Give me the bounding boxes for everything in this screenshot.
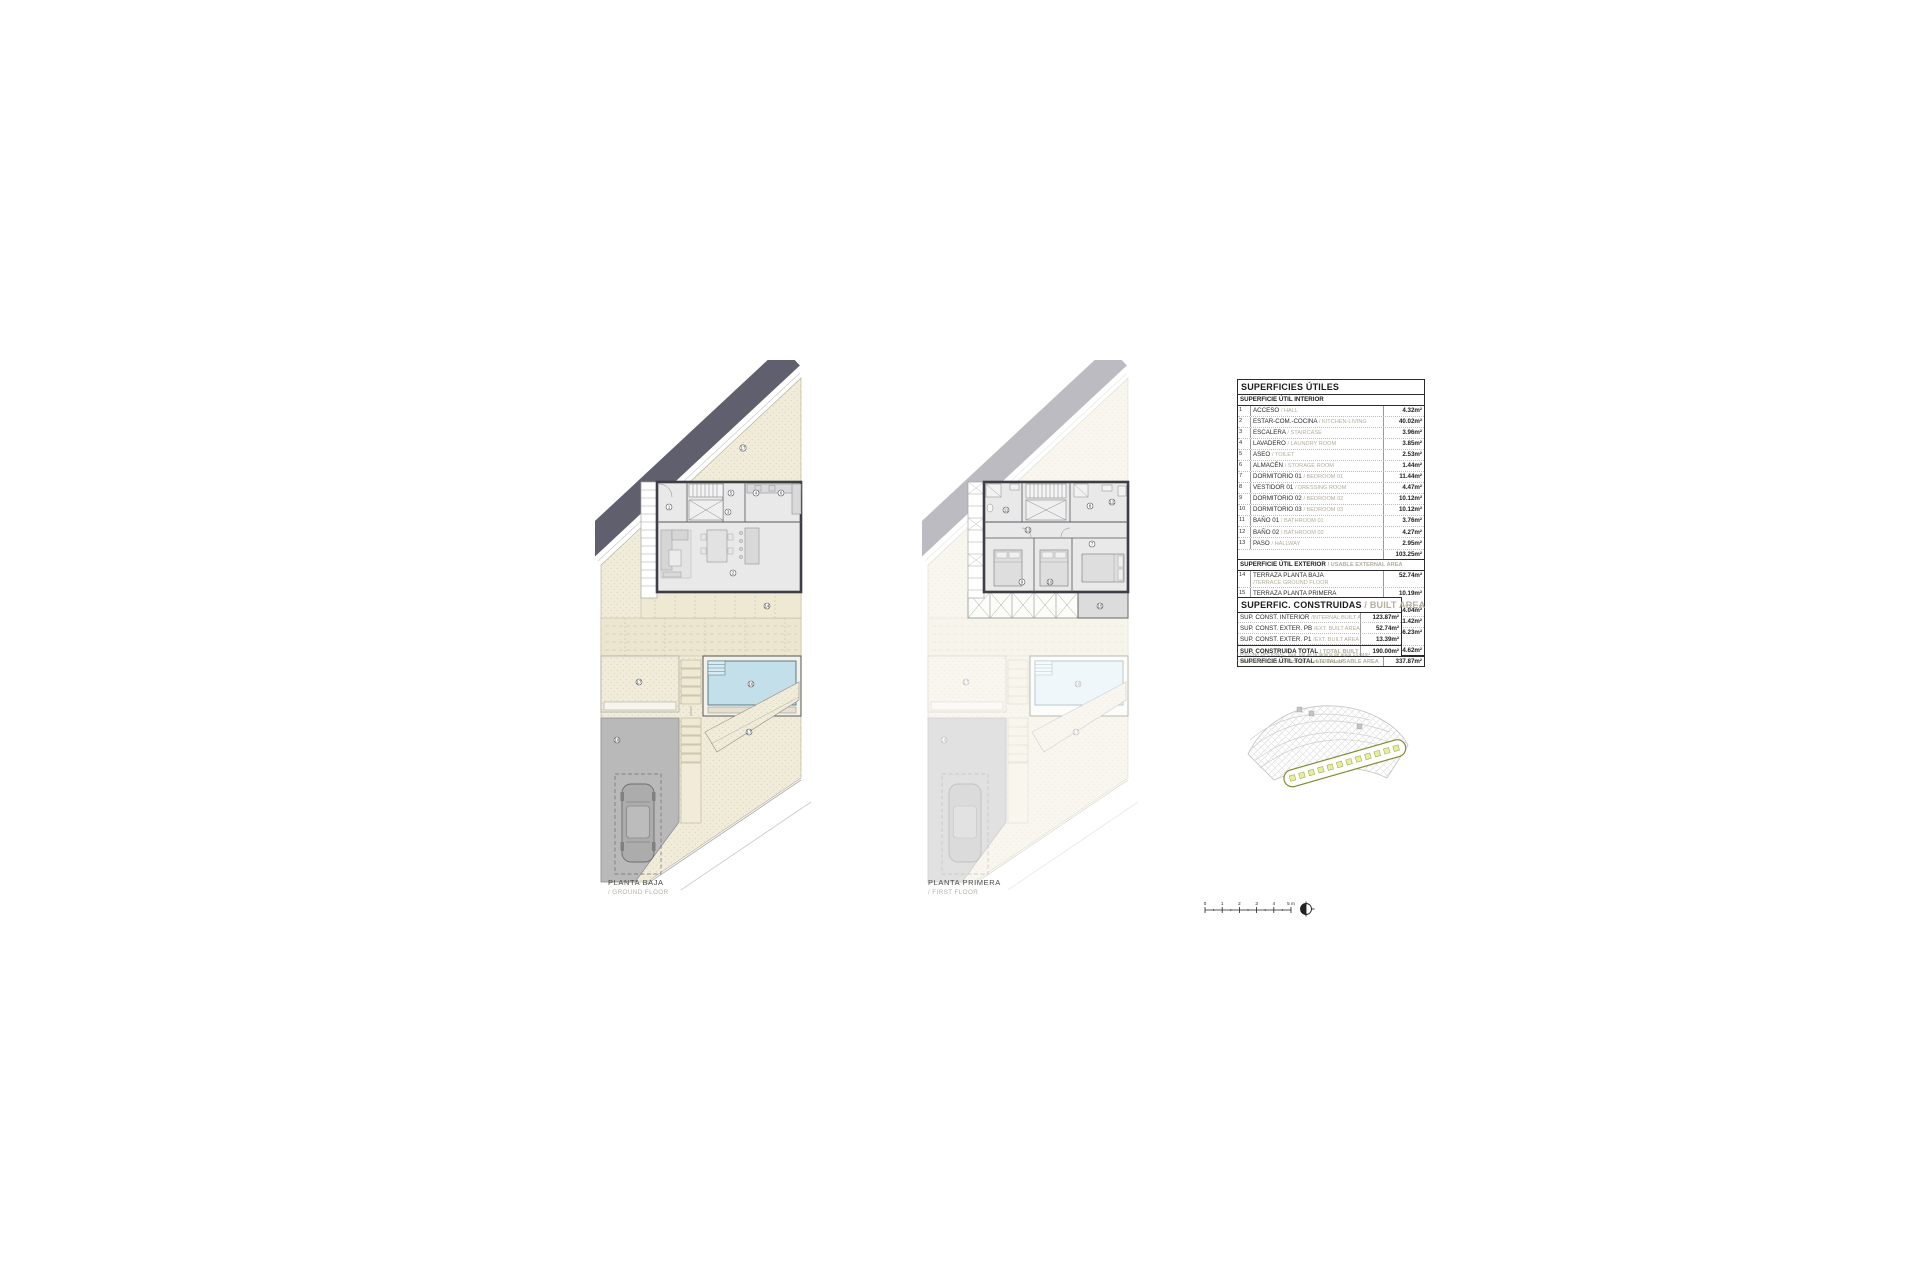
table-row: 4LAVADERO / LAUNDRY ROOM3.85m² bbox=[1238, 439, 1424, 450]
table-row: SUP. CONST. EXTER. P1 /EXT. BUILT AREA P… bbox=[1238, 634, 1401, 645]
footnote: * PISCINA OPCIONAL: Sup. útil de la lámi… bbox=[1237, 651, 1370, 658]
svg-text:3: 3 bbox=[1255, 901, 1258, 906]
svg-text:16: 16 bbox=[749, 682, 754, 687]
table-row: 14TERRAZA PLANTA BAJA /TERRACE GROUND FL… bbox=[1238, 571, 1424, 589]
svg-text:16: 16 bbox=[1076, 682, 1081, 687]
svg-text:2: 2 bbox=[1238, 901, 1241, 906]
pergola-terrace bbox=[968, 592, 1078, 618]
drawing-sheet: 17 5 4 6 1 3 2 14 17 16 18 17 bbox=[0, 0, 1920, 1280]
first-floor-label: PLANTA PRIMERA / FIRST FLOOR bbox=[928, 877, 1001, 898]
exterior-section-header: SUPERFICIE ÚTIL EXTERIOR / USABLE EXTERN… bbox=[1238, 560, 1424, 571]
table-row: 13PASO / HALLWAY2.95m² bbox=[1238, 538, 1424, 549]
svg-text:13: 13 bbox=[1026, 528, 1031, 533]
svg-text:14: 14 bbox=[765, 604, 770, 609]
terrace-ground bbox=[641, 592, 801, 618]
table-row: 2ESTAR-COM.-COCINA / KITCHEN-LIVING40.02… bbox=[1238, 417, 1424, 428]
table-row: 8VESTIDOR 01 / DRESSING ROOM4.47m² bbox=[1238, 483, 1424, 494]
svg-text:0: 0 bbox=[1204, 901, 1207, 906]
table-title: SUPERFIC. CONSTRUIDAS / BUILT AREA bbox=[1238, 598, 1401, 613]
site-location-diagram bbox=[1240, 698, 1417, 788]
svg-text:15: 15 bbox=[1098, 604, 1103, 609]
interior-section-header: SUPERFICIE ÚTIL INTERIOR bbox=[1238, 395, 1424, 406]
staircase bbox=[689, 484, 723, 497]
svg-text:17: 17 bbox=[1074, 730, 1079, 735]
bed-03 bbox=[1040, 550, 1068, 586]
svg-text:17: 17 bbox=[747, 730, 752, 735]
svg-text:12: 12 bbox=[1110, 500, 1115, 505]
north-arrow-icon bbox=[1301, 902, 1315, 917]
svg-text:17: 17 bbox=[637, 680, 642, 685]
table-row: 11BAÑO 01 / BATHROOM 013.76m² bbox=[1238, 516, 1424, 527]
paving-band bbox=[601, 618, 801, 656]
table-row: 12BAÑO 02 / BATHROOM 024.27m² bbox=[1238, 527, 1424, 538]
footnote: * SWIMMING POOL OPTIONAL: Surface 14.04m… bbox=[1237, 658, 1370, 665]
louver-strip bbox=[641, 482, 657, 598]
svg-text:1: 1 bbox=[1221, 901, 1224, 906]
scale-bar: 0 1 2 3 4 5 m bbox=[1203, 899, 1323, 919]
table-row: 10DORMITORIO 03 / BEDROOM 0310.12m² bbox=[1238, 505, 1424, 516]
svg-text:18: 18 bbox=[615, 738, 620, 743]
garden-steps bbox=[681, 660, 701, 823]
kitchen-island bbox=[745, 528, 759, 564]
svg-text:5 m: 5 m bbox=[1287, 901, 1295, 906]
table-row: 3ESCALERA / STAIRCASE3.96m² bbox=[1238, 428, 1424, 439]
svg-text:18: 18 bbox=[942, 738, 947, 743]
dining-table bbox=[707, 530, 727, 562]
svg-text:4: 4 bbox=[1273, 901, 1276, 906]
svg-text:17: 17 bbox=[741, 446, 746, 451]
table-row: 9DORMITORIO 02 / BEDROOM 0210.12m² bbox=[1238, 494, 1424, 505]
louver-strip bbox=[968, 482, 984, 598]
svg-text:10: 10 bbox=[1048, 580, 1053, 585]
table-row: 7DORMITORIO 01 / BEDROOM 0111.44m² bbox=[1238, 472, 1424, 483]
faded-site-context: 17 16 18 17 bbox=[922, 360, 1138, 890]
first-floor-plan: 17 16 18 17 bbox=[922, 360, 1142, 890]
svg-text:17: 17 bbox=[964, 680, 969, 685]
table-row: SUP. CONST. EXTER. PB /EXT. BUILT AREA P… bbox=[1238, 623, 1401, 634]
interior-subtotal-row: 103.25m² bbox=[1238, 550, 1424, 560]
bed-01 bbox=[1082, 554, 1124, 582]
ground-floor-label: PLANTA BAJA / GROUND FLOOR bbox=[608, 877, 669, 898]
table-row: 6ALMACÉN / STORAGE ROOM1.44m² bbox=[1238, 461, 1424, 472]
svg-text:11: 11 bbox=[1004, 508, 1009, 513]
table-row: 5ASEO / TOILET2.53m² bbox=[1238, 450, 1424, 461]
table-title: SUPERFICIES ÚTILES bbox=[1238, 380, 1424, 395]
table-footnotes: * PISCINA OPCIONAL: Sup. útil de la lámi… bbox=[1237, 651, 1370, 666]
ground-floor-plan: 17 5 4 6 1 3 2 14 17 16 18 17 bbox=[595, 360, 815, 890]
table-row: SUP. CONST. INTERIOR /INTERNAL BUILT ARE… bbox=[1238, 613, 1401, 624]
table-row: 1ACCESO / HALL4.32m² bbox=[1238, 406, 1424, 417]
built-areas-table: SUPERFIC. CONSTRUIDAS / BUILT AREA SUP. … bbox=[1237, 597, 1402, 657]
bed-02 bbox=[994, 550, 1022, 586]
